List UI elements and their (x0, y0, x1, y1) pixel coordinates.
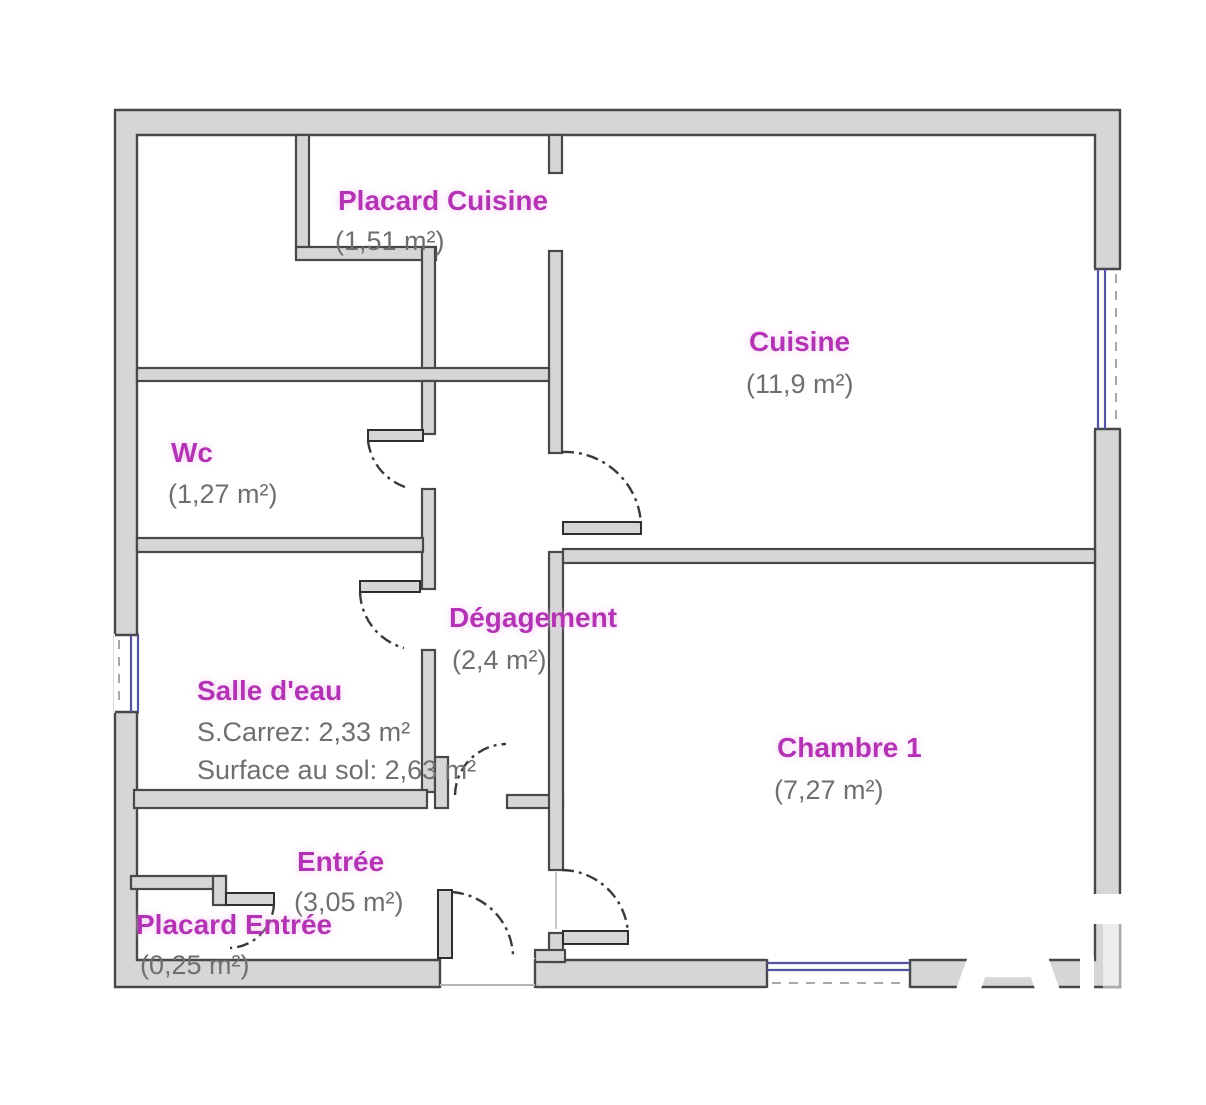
label-chambre-1: Chambre 1 (777, 732, 922, 763)
area-placard-cuisine: (1,51 m²) (335, 226, 445, 256)
label-wc: Wc (171, 437, 213, 468)
wall-chambre-west (549, 552, 563, 870)
door-front-icon (438, 890, 513, 958)
wall-placard-cuisine-west (296, 135, 309, 253)
window-right-icon (1092, 268, 1122, 430)
area-degagement: (2,4 m²) (452, 645, 547, 675)
door-chambre-icon (556, 870, 628, 944)
area-salle-eau-carrez: S.Carrez: 2,33 m² (197, 717, 410, 747)
area-salle-eau-floor: Surface au sol: 2,63 m² (197, 755, 476, 785)
area-cuisine: (11,9 m²) (746, 369, 854, 399)
door-wc-icon (368, 430, 423, 488)
floor-plan: A Placard Cuisine (1,51 m²) Cuisine (11,… (0, 0, 1206, 1105)
label-degagement: Dégagement (449, 602, 617, 633)
label-cuisine: Cuisine (749, 326, 850, 357)
wall-wc-south (137, 538, 423, 552)
area-chambre-1: (7,27 m²) (774, 775, 884, 805)
door-cuisine-icon (562, 452, 641, 534)
wall-cuisine-west (549, 251, 562, 453)
wall-nook-west (422, 247, 435, 380)
inner-walls (131, 135, 1095, 962)
watermark-letter: A (945, 851, 1071, 1046)
label-placard-entree: Placard Entrée (136, 909, 332, 940)
wall-placard-entree-north (131, 876, 226, 889)
label-entree: Entrée (297, 846, 384, 877)
front-door-opening (440, 958, 535, 989)
label-salle-eau: Salle d'eau (197, 675, 342, 706)
area-placard-entree: (0,25 m²) (140, 950, 250, 980)
room-labels: Placard Cuisine (1,51 m²) Cuisine (11,9 … (136, 185, 922, 980)
wall-bottom-notch (535, 950, 565, 962)
wall-cuisine-chambre-divider (563, 549, 1095, 563)
floor-plan-canvas: A Placard Cuisine (1,51 m²) Cuisine (11,… (0, 0, 1206, 1105)
area-wc: (1,27 m²) (168, 479, 278, 509)
wall-wc-north (137, 368, 549, 381)
window-bottom-icon (766, 958, 911, 989)
wall-placard-entree-step (213, 876, 226, 905)
window-left-icon (114, 634, 139, 713)
wall-cuisine-west-stub (549, 135, 562, 173)
wall-salle-eau-south (134, 790, 427, 808)
label-placard-cuisine: Placard Cuisine (338, 185, 548, 216)
door-salle-eau-icon (360, 581, 420, 648)
wall-corridor-west-a (422, 381, 435, 434)
